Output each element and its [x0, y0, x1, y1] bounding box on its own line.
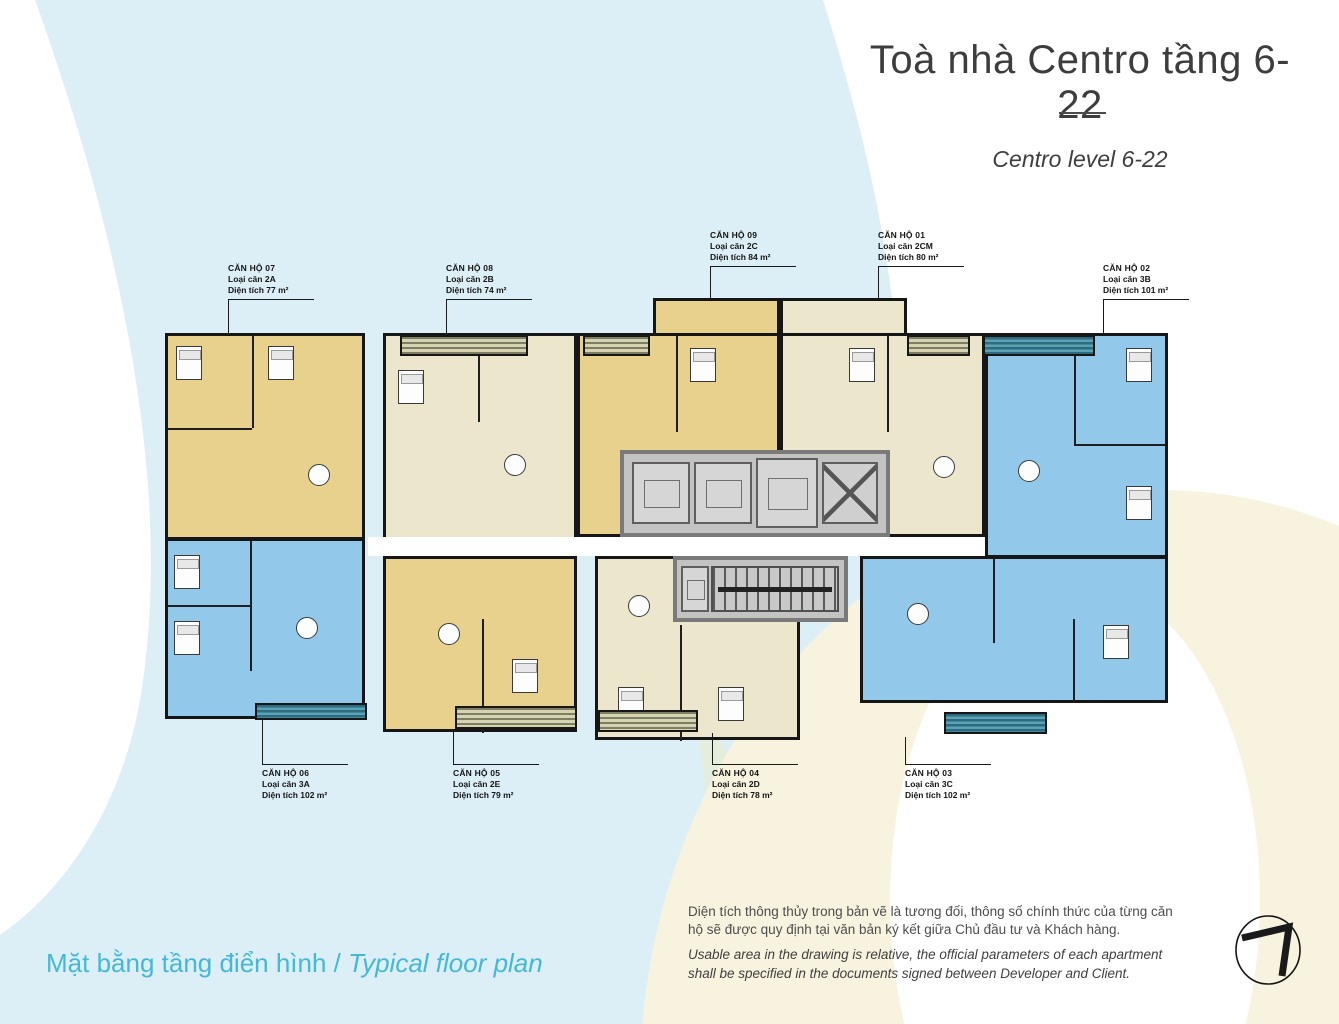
unit-area: Diện tích 84 m² — [710, 252, 796, 263]
caption-english: Typical floor plan — [348, 948, 543, 978]
unit-area: Diện tích 102 m² — [905, 790, 991, 801]
unit-label-01: CĂN HỘ 01 Loại căn 2CM Diện tích 80 m² — [878, 230, 964, 267]
poster-canvas: Toà nhà Centro tầng 6-22 Centro level 6-… — [0, 0, 1339, 1024]
balcony-strip — [907, 335, 970, 356]
furniture-bed — [1103, 625, 1129, 659]
unit-type: Loại căn 2C — [710, 241, 796, 252]
unit-label-07: CĂN HỘ 07 Loại căn 2A Diện tích 77 m² — [228, 263, 314, 300]
leader-line — [453, 729, 454, 764]
unit-type: Loại căn 3C — [905, 779, 991, 790]
apartment-09-region — [653, 298, 780, 338]
title-divider — [1059, 112, 1106, 114]
unit-label-06: CĂN HỘ 06 Loại căn 3A Diện tích 102 m² — [262, 764, 348, 801]
furniture-table — [933, 456, 955, 478]
furniture-bed — [398, 370, 424, 404]
unit-type: Loại căn 2CM — [878, 241, 964, 252]
balcony-strip — [598, 710, 698, 732]
unit-type: Loại căn 2E — [453, 779, 539, 790]
disclaimer: Diện tích thông thủy trong bản vẽ là tươ… — [688, 903, 1188, 983]
unit-area: Diện tích 102 m² — [262, 790, 348, 801]
unit-name: CĂN HỘ 02 — [1103, 263, 1189, 274]
furniture-table — [1018, 460, 1040, 482]
furniture-bed — [690, 348, 716, 382]
unit-area: Diện tích 74 m² — [446, 285, 532, 296]
unit-label-04: CĂN HỘ 04 Loại căn 2D Diện tích 78 m² — [712, 764, 798, 801]
interior-wall — [252, 336, 254, 428]
label-rule — [262, 764, 348, 765]
disclaimer-vietnamese: Diện tích thông thủy trong bản vẽ là tươ… — [688, 903, 1188, 939]
unit-area: Diện tích 101 m² — [1103, 285, 1189, 296]
unit-area: Diện tích 79 m² — [453, 790, 539, 801]
staircase — [711, 566, 839, 612]
label-rule — [453, 764, 539, 765]
apartment-07-region — [165, 333, 365, 540]
stair-core — [673, 556, 848, 622]
unit-type: Loại căn 2D — [712, 779, 798, 790]
label-rule — [228, 299, 314, 300]
leader-line — [710, 267, 711, 298]
leader-line — [1103, 300, 1104, 333]
interior-wall — [250, 541, 252, 671]
unit-name: CĂN HỘ 09 — [710, 230, 796, 241]
unit-area: Diện tích 80 m² — [878, 252, 964, 263]
balcony-strip — [255, 703, 367, 720]
unit-label-09: CĂN HỘ 09 Loại căn 2C Diện tích 84 m² — [710, 230, 796, 267]
shaft-cell — [822, 462, 878, 524]
leader-line — [228, 300, 229, 333]
unit-type: Loại căn 3B — [1103, 274, 1189, 285]
interior-wall — [168, 428, 252, 430]
leader-line — [712, 733, 713, 764]
leader-line — [262, 719, 263, 764]
furniture-bed — [174, 621, 200, 655]
page-subtitle: Centro level 6-22 — [850, 146, 1310, 173]
elevator-cell — [756, 458, 818, 528]
label-rule — [878, 266, 964, 267]
furniture-bed — [718, 687, 744, 721]
interior-wall — [1073, 619, 1075, 703]
brand-logo — [1232, 912, 1304, 996]
elevator-cell — [632, 462, 690, 524]
apartment-08-region — [383, 333, 577, 540]
unit-label-02: CĂN HỘ 02 Loại căn 3B Diện tích 101 m² — [1103, 263, 1189, 300]
apartment-06-region — [165, 538, 365, 719]
unit-name: CĂN HỘ 03 — [905, 768, 991, 779]
balcony-strip — [583, 335, 650, 356]
corridor — [368, 537, 985, 556]
elevator-core — [620, 450, 890, 537]
label-rule — [905, 764, 991, 765]
page-title: Toà nhà Centro tầng 6-22 — [850, 38, 1310, 128]
furniture-table — [907, 603, 929, 625]
label-rule — [710, 266, 796, 267]
interior-wall — [1074, 444, 1165, 446]
label-rule — [712, 764, 798, 765]
furniture-bed — [1126, 348, 1152, 382]
unit-name: CĂN HỘ 07 — [228, 263, 314, 274]
label-rule — [1103, 299, 1189, 300]
furniture-table — [628, 595, 650, 617]
furniture-table — [296, 617, 318, 639]
furniture-bed — [1126, 486, 1152, 520]
apartment-01-region — [780, 298, 907, 338]
furniture-bed — [268, 346, 294, 380]
caption-vietnamese: Mặt bằng tầng điển hình / — [46, 948, 348, 978]
interior-wall — [887, 336, 889, 432]
logo-mark — [1242, 927, 1289, 976]
unit-label-03: CĂN HỘ 03 Loại căn 3C Diện tích 102 m² — [905, 764, 991, 801]
unit-name: CĂN HỘ 08 — [446, 263, 532, 274]
leader-line — [905, 737, 906, 764]
balcony-strip — [983, 335, 1095, 356]
furniture-table — [438, 623, 460, 645]
leader-line — [878, 267, 879, 298]
interior-wall — [676, 336, 678, 432]
furniture-bed — [512, 659, 538, 693]
interior-wall — [993, 559, 995, 643]
apartment-02-region — [985, 333, 1168, 558]
floor-plan — [165, 298, 1170, 744]
balcony-strip — [400, 335, 528, 356]
furniture-bed — [176, 346, 202, 380]
unit-name: CĂN HỘ 04 — [712, 768, 798, 779]
elevator-cell — [694, 462, 752, 524]
interior-wall — [168, 605, 250, 607]
unit-label-05: CĂN HỘ 05 Loại căn 2E Diện tích 79 m² — [453, 764, 539, 801]
furniture-bed — [849, 348, 875, 382]
unit-name: CĂN HỘ 05 — [453, 768, 539, 779]
elevator-cell — [681, 566, 709, 612]
label-rule — [446, 299, 532, 300]
furniture-table — [504, 454, 526, 476]
apartment-03-region — [860, 556, 1168, 703]
unit-type: Loại căn 2A — [228, 274, 314, 285]
unit-type: Loại căn 3A — [262, 779, 348, 790]
unit-area: Diện tích 78 m² — [712, 790, 798, 801]
floor-plan-caption: Mặt bằng tầng điển hình / Typical floor … — [46, 948, 543, 979]
unit-name: CĂN HỘ 06 — [262, 768, 348, 779]
unit-label-08: CĂN HỘ 08 Loại căn 2B Diện tích 74 m² — [446, 263, 532, 300]
furniture-table — [308, 464, 330, 486]
balcony-strip — [455, 706, 577, 729]
furniture-bed — [174, 555, 200, 589]
leader-line — [446, 300, 447, 333]
unit-type: Loại căn 2B — [446, 274, 532, 285]
unit-name: CĂN HỘ 01 — [878, 230, 964, 241]
balcony-strip — [944, 712, 1047, 734]
unit-area: Diện tích 77 m² — [228, 285, 314, 296]
disclaimer-english: Usable area in the drawing is relative, … — [688, 946, 1188, 982]
